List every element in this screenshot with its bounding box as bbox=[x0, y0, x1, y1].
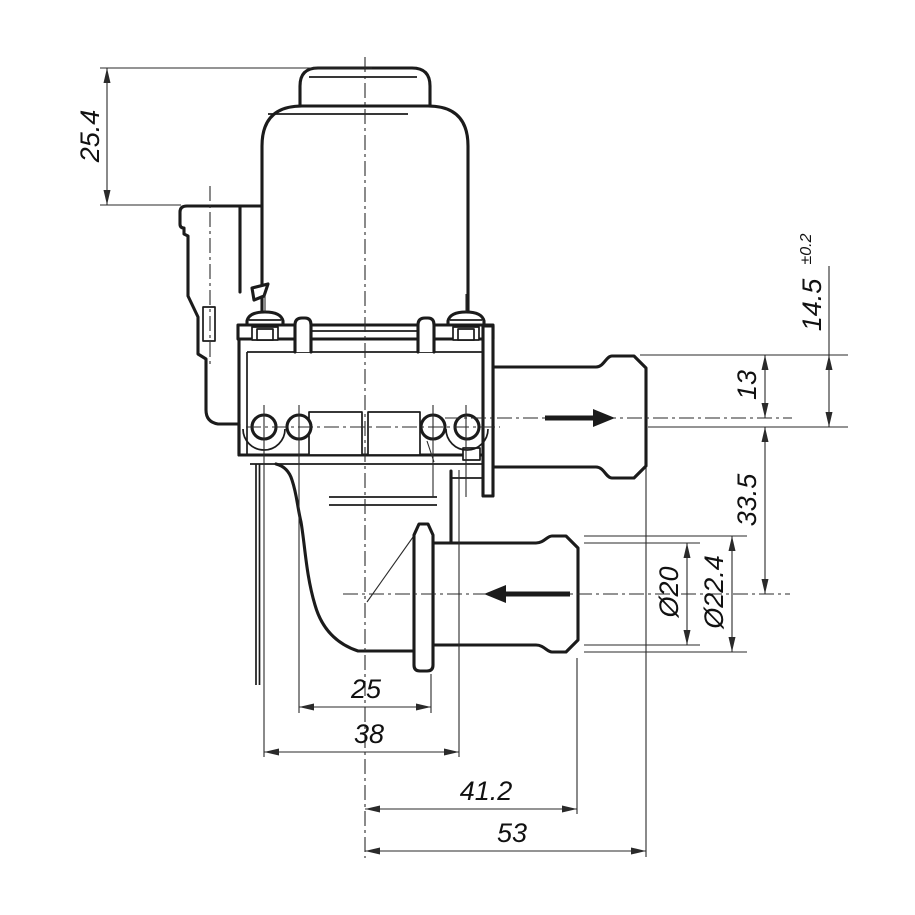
dim-label-25-4: 25.4 bbox=[75, 110, 105, 164]
dimension-hole-to-flange: 25 bbox=[299, 674, 431, 711]
dimension-barb-to-axis: 13 bbox=[732, 355, 769, 418]
dim-label-25: 25 bbox=[350, 674, 382, 704]
elbow-diagonal-edge bbox=[367, 530, 418, 602]
outlet-port-upper bbox=[483, 326, 646, 496]
dim-label-53: 53 bbox=[497, 818, 527, 848]
dimension-center-to-outlet-end: 53 bbox=[365, 818, 646, 855]
dim-label-dia-22-4: Ø22.4 bbox=[699, 555, 729, 630]
dimension-axis-to-axis: 33.5 bbox=[732, 427, 769, 594]
dimension-center-to-inlet-end: 41.2 bbox=[365, 776, 577, 813]
valve-technical-drawing-page: 25.4 13 14.5 ±0.2 33.5 Ø20 bbox=[0, 0, 915, 915]
dim-label-dia-20: Ø20 bbox=[654, 566, 684, 618]
connector-terminal-pin bbox=[203, 307, 215, 341]
mounting-lug-left bbox=[295, 318, 311, 352]
bracket-window-right bbox=[368, 412, 420, 455]
bracket-window-left bbox=[309, 412, 362, 455]
dim-label-33-5: 33.5 bbox=[732, 473, 762, 527]
dim-label-14-5: 14.5 bbox=[797, 278, 827, 332]
dim-label-38: 38 bbox=[354, 719, 384, 749]
bracket-windows bbox=[309, 412, 434, 462]
valve-technical-drawing: 25.4 13 14.5 ±0.2 33.5 Ø20 bbox=[0, 0, 915, 915]
dim-label-41-2: 41.2 bbox=[460, 776, 513, 806]
inlet-port-flange bbox=[414, 524, 433, 671]
dim-label-13: 13 bbox=[732, 370, 762, 400]
outlet-port-flange bbox=[483, 326, 493, 496]
dimension-flange-span: 38 bbox=[264, 719, 459, 756]
dim-label-14-5-tolerance: ±0.2 bbox=[798, 233, 815, 264]
dimension-barb-to-hole-axis: 14.5 ±0.2 bbox=[797, 233, 833, 427]
mounting-lug-right bbox=[418, 318, 434, 352]
